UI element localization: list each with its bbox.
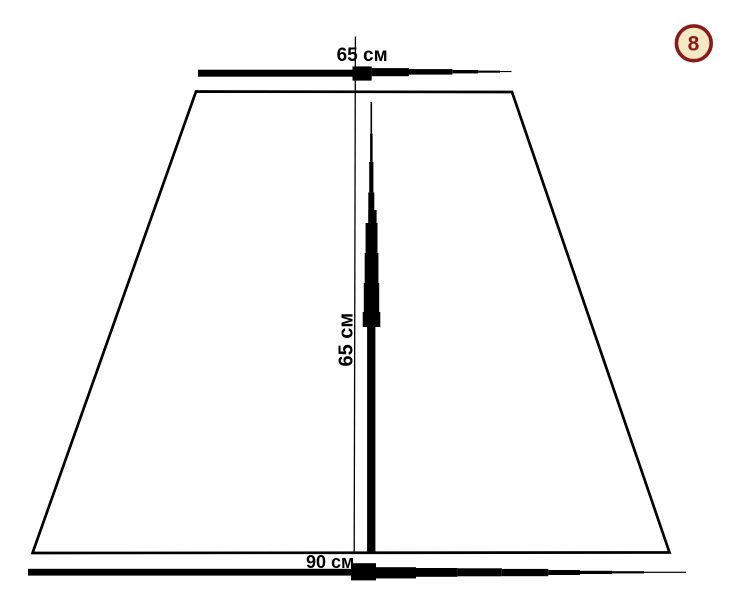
svg-text:8: 8 <box>688 33 700 56</box>
svg-text:65 см: 65 см <box>336 313 358 367</box>
svg-text:65 см: 65 см <box>337 45 388 66</box>
